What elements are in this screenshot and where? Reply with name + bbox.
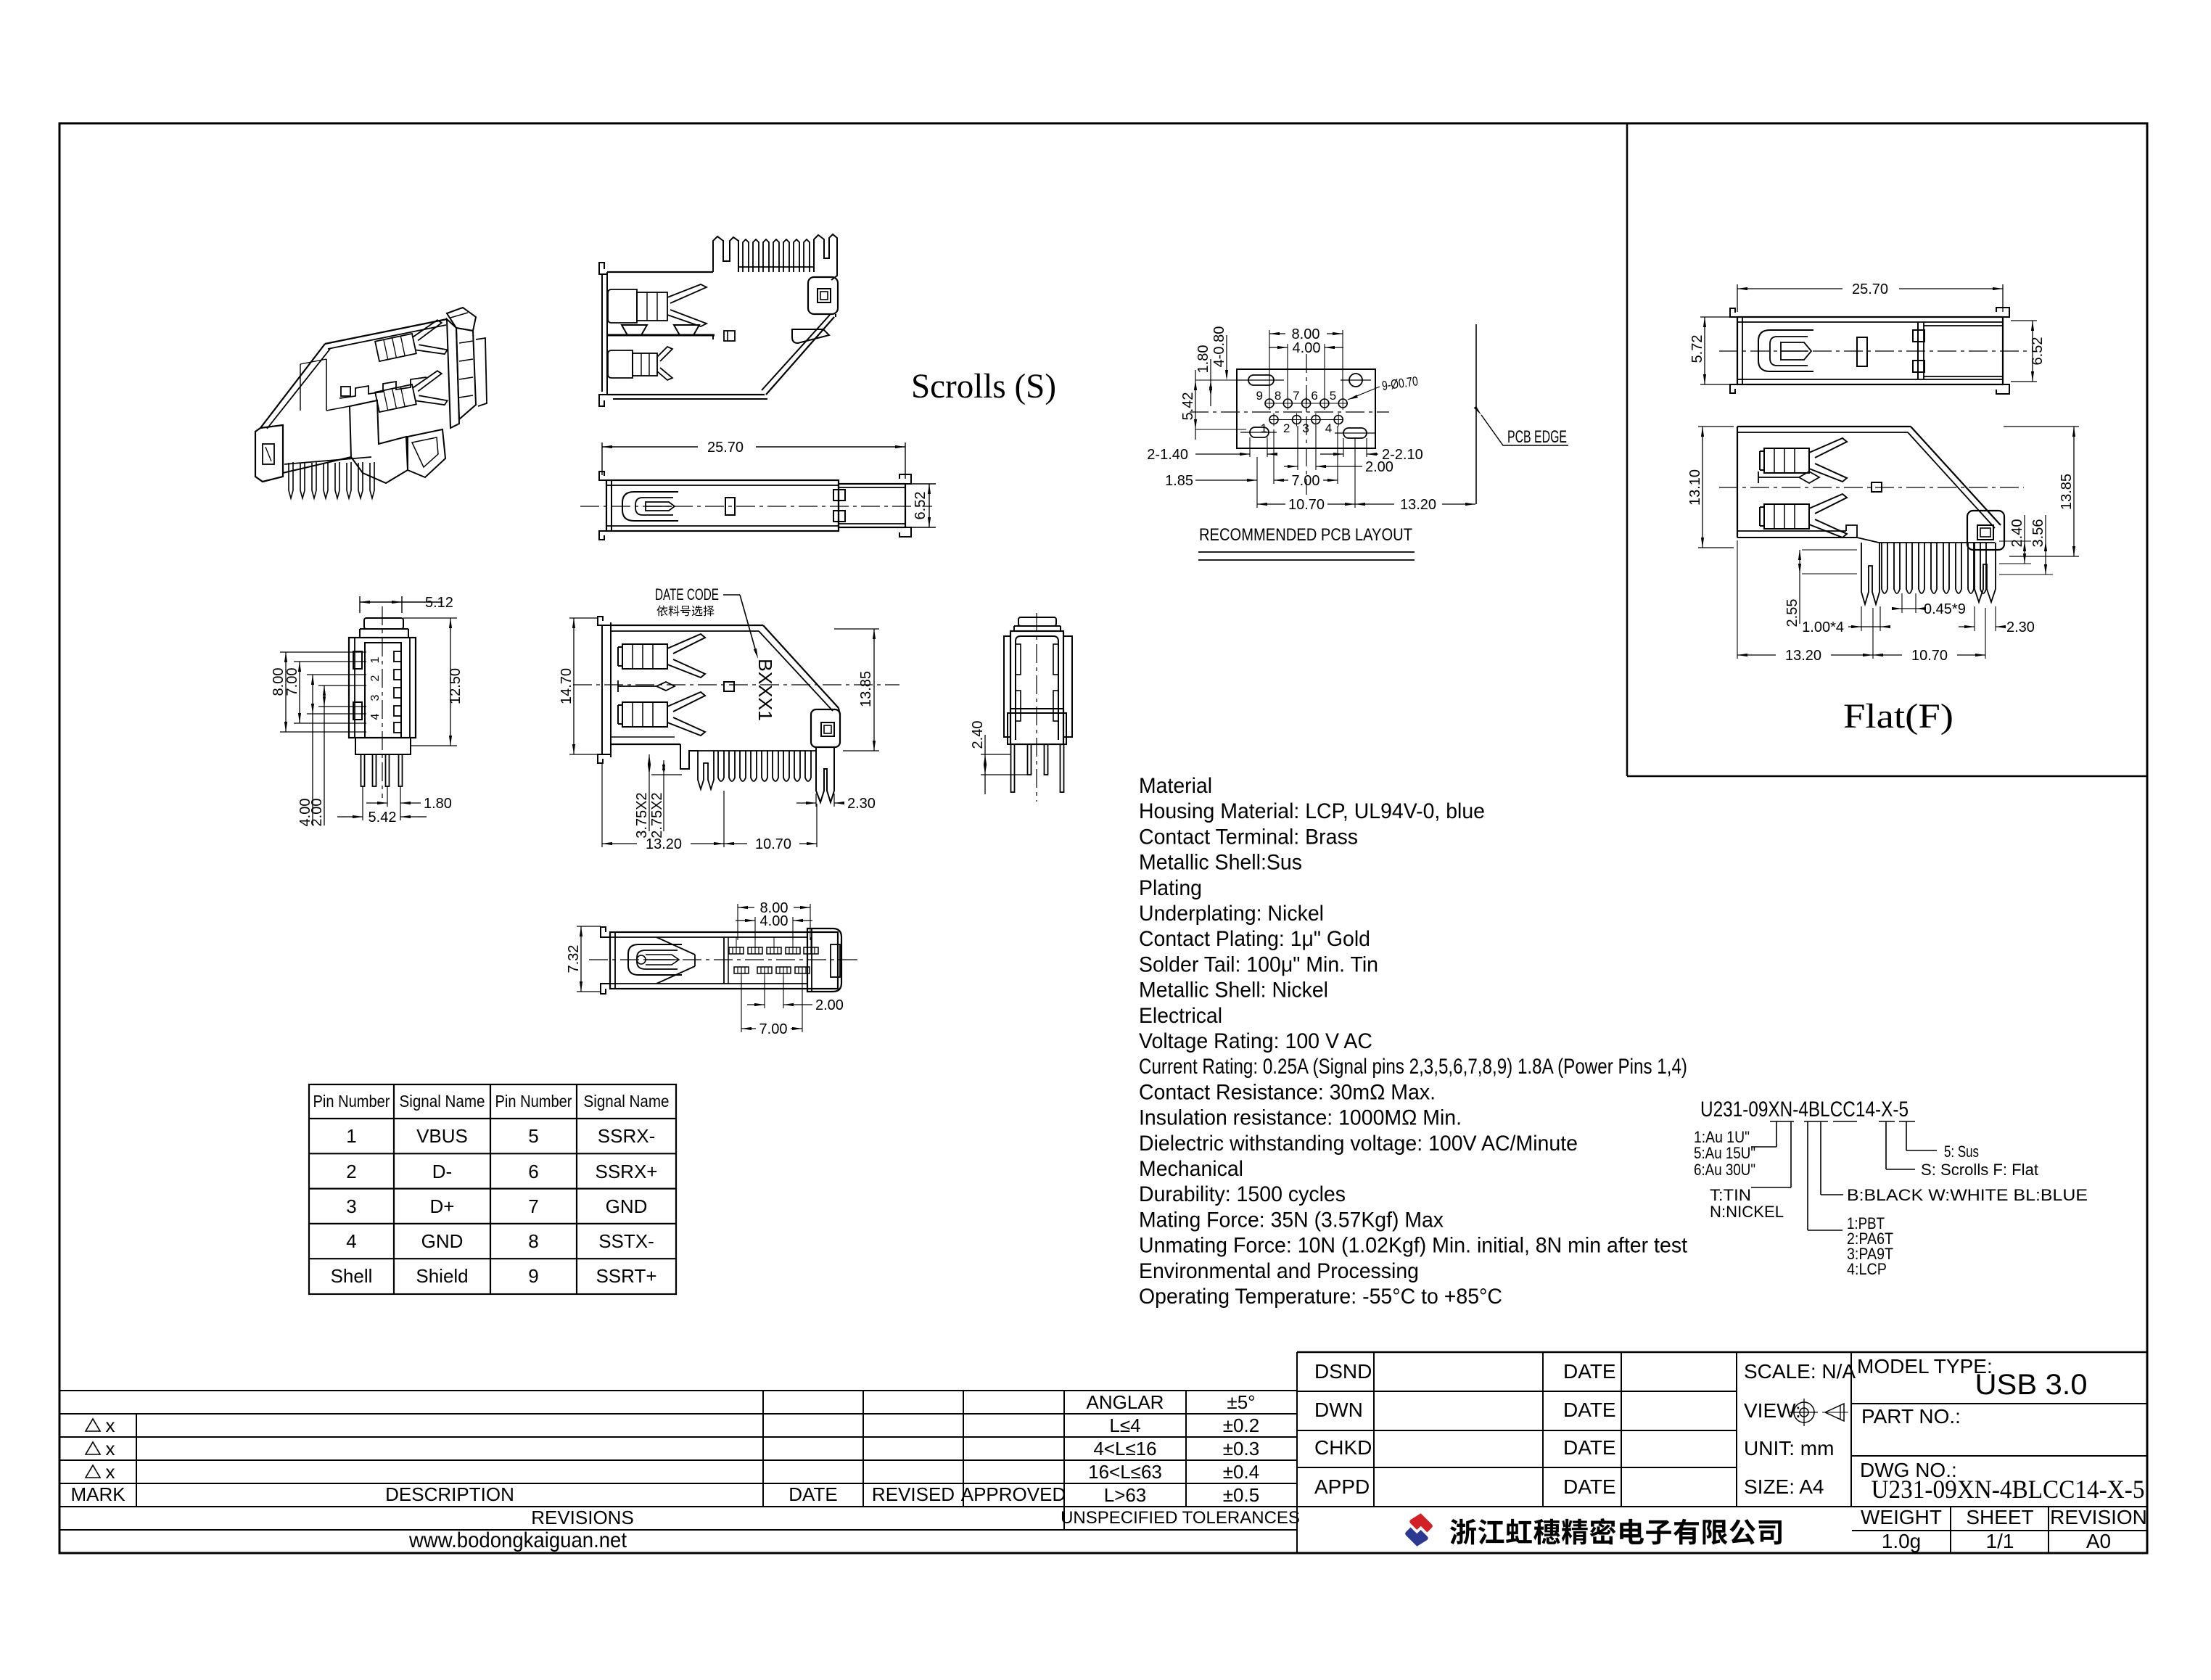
svg-text:±5°: ±5° bbox=[1227, 1391, 1255, 1413]
svg-text:RECOMMENDED PCB LAYOUT: RECOMMENDED PCB LAYOUT bbox=[1199, 525, 1412, 545]
svg-text:Electrical: Electrical bbox=[1139, 1004, 1222, 1028]
svg-text:U231-09XN-4BLCC14-X-5: U231-09XN-4BLCC14-X-5 bbox=[1872, 1475, 2145, 1504]
svg-text:5: 5 bbox=[528, 1125, 538, 1147]
svg-text:MODEL TYPE:: MODEL TYPE: bbox=[1857, 1355, 1993, 1378]
svg-text:4.00: 4.00 bbox=[1293, 340, 1321, 356]
svg-text:6: 6 bbox=[1311, 389, 1317, 403]
svg-text:12.50: 12.50 bbox=[448, 668, 464, 704]
svg-text:5.72: 5.72 bbox=[1689, 335, 1705, 363]
svg-text:14.70: 14.70 bbox=[559, 668, 575, 704]
svg-text:L≤4: L≤4 bbox=[1109, 1415, 1140, 1436]
svg-text:DATE: DATE bbox=[1563, 1436, 1616, 1459]
svg-text:10.70: 10.70 bbox=[1288, 497, 1325, 513]
svg-text:Voltage Rating: 100 V AC: Voltage Rating: 100 V AC bbox=[1139, 1029, 1372, 1053]
svg-text:5.42: 5.42 bbox=[1180, 392, 1196, 421]
svg-text:5: 5 bbox=[1330, 389, 1336, 403]
svg-text:USB 3.0: USB 3.0 bbox=[1975, 1369, 2088, 1401]
svg-text:SSRT+: SSRT+ bbox=[596, 1265, 656, 1287]
svg-text:SSRX+: SSRX+ bbox=[596, 1161, 658, 1182]
svg-text:4: 4 bbox=[346, 1230, 356, 1252]
svg-text:UNSPECIFIED TOLERANCES: UNSPECIFIED TOLERANCES bbox=[1061, 1508, 1300, 1528]
svg-text:A0: A0 bbox=[2086, 1530, 2111, 1552]
svg-text:VBUS: VBUS bbox=[416, 1125, 468, 1147]
svg-text:Dielectric withstanding voltag: Dielectric withstanding voltage: 100V AC… bbox=[1139, 1132, 1578, 1156]
svg-text:x: x bbox=[106, 1461, 115, 1483]
svg-text:3: 3 bbox=[1302, 421, 1309, 435]
svg-text:3: 3 bbox=[346, 1195, 356, 1217]
svg-text:Contact Terminal: Brass: Contact Terminal: Brass bbox=[1139, 825, 1358, 849]
svg-text:2.55: 2.55 bbox=[1784, 599, 1800, 627]
svg-text:MARK: MARK bbox=[70, 1483, 125, 1505]
svg-text:2.75X2: 2.75X2 bbox=[649, 792, 665, 838]
svg-text:8: 8 bbox=[528, 1230, 538, 1252]
svg-text:Shield: Shield bbox=[416, 1265, 468, 1287]
svg-text:SHEET: SHEET bbox=[1966, 1506, 2033, 1528]
svg-text:L>63: L>63 bbox=[1104, 1484, 1147, 1506]
svg-text:1.80: 1.80 bbox=[1195, 345, 1211, 374]
svg-text:7.00: 7.00 bbox=[759, 1021, 788, 1037]
svg-text:DATE: DATE bbox=[789, 1483, 837, 1505]
svg-text:1.80: 1.80 bbox=[424, 796, 452, 812]
svg-text:2.00: 2.00 bbox=[309, 799, 325, 827]
svg-text:13.85: 13.85 bbox=[858, 671, 874, 707]
svg-text:2.40: 2.40 bbox=[970, 721, 986, 749]
svg-text:±0.5: ±0.5 bbox=[1223, 1484, 1259, 1506]
svg-text:N:NICKEL: N:NICKEL bbox=[1710, 1203, 1784, 1221]
svg-text:Scrolls (S): Scrolls (S) bbox=[911, 367, 1056, 405]
svg-text:BXXX1: BXXX1 bbox=[754, 659, 776, 721]
svg-text:7: 7 bbox=[528, 1195, 538, 1217]
svg-text:Metallic Shell:Sus: Metallic Shell:Sus bbox=[1139, 851, 1302, 875]
svg-text:x: x bbox=[106, 1415, 115, 1436]
svg-text:PART NO.:: PART NO.: bbox=[1861, 1405, 1961, 1428]
svg-text:WEIGHT: WEIGHT bbox=[1861, 1506, 1942, 1528]
svg-text:13.20: 13.20 bbox=[646, 836, 682, 852]
svg-text:Unmating Force: 10N (1.02Kgf): Unmating Force: 10N (1.02Kgf) Min. initi… bbox=[1139, 1234, 1688, 1258]
svg-text:3.75X2: 3.75X2 bbox=[634, 792, 650, 838]
svg-text:U231-09XN-4BLCC14-X-5: U231-09XN-4BLCC14-X-5 bbox=[1700, 1098, 1909, 1121]
svg-text:2.00: 2.00 bbox=[815, 997, 844, 1013]
svg-text:±0.2: ±0.2 bbox=[1223, 1415, 1259, 1436]
svg-text:REVISION: REVISION bbox=[2050, 1506, 2147, 1528]
svg-text:Material: Material bbox=[1139, 774, 1212, 798]
svg-text:S: Scrolls F: Flat: S: Scrolls F: Flat bbox=[1921, 1161, 2038, 1179]
svg-text:APPROVED: APPROVED bbox=[961, 1483, 1066, 1505]
svg-text:UNIT: mm: UNIT: mm bbox=[1744, 1437, 1834, 1459]
svg-text:3.56: 3.56 bbox=[2030, 519, 2046, 548]
svg-text:Current Rating: 0.25A (Signal: Current Rating: 0.25A (Signal pins 2,3,5… bbox=[1139, 1055, 1687, 1079]
svg-text:x: x bbox=[106, 1438, 115, 1459]
svg-text:VIEW:: VIEW: bbox=[1744, 1399, 1801, 1422]
svg-text:2-1.40: 2-1.40 bbox=[1147, 447, 1188, 463]
svg-text:13.10: 13.10 bbox=[1687, 469, 1703, 506]
svg-text:1.0g: 1.0g bbox=[1882, 1530, 1922, 1552]
svg-text:Contact Plating: 1μ" Gold: Contact Plating: 1μ" Gold bbox=[1139, 927, 1370, 951]
svg-text:7: 7 bbox=[1293, 389, 1299, 403]
svg-text:1/1: 1/1 bbox=[1986, 1530, 2014, 1552]
svg-text:16<L≤63: 16<L≤63 bbox=[1088, 1461, 1162, 1483]
svg-text:DESCRIPTION: DESCRIPTION bbox=[385, 1483, 514, 1505]
svg-text:Underplating: Nickel: Underplating: Nickel bbox=[1139, 902, 1324, 926]
svg-text:DATE: DATE bbox=[1563, 1475, 1616, 1498]
svg-text:7.32: 7.32 bbox=[566, 945, 582, 973]
svg-text:T:TIN: T:TIN bbox=[1710, 1186, 1751, 1204]
svg-text:5.42: 5.42 bbox=[368, 810, 397, 825]
svg-text:5.12: 5.12 bbox=[425, 595, 453, 611]
svg-text:CHKD: CHKD bbox=[1314, 1436, 1372, 1459]
svg-text:Housing Material: LCP, UL94V-0: Housing Material: LCP, UL94V-0, blue bbox=[1139, 799, 1485, 823]
svg-text:Mating Force: 35N (3.57Kgf) Ma: Mating Force: 35N (3.57Kgf) Max bbox=[1139, 1208, 1444, 1232]
svg-text:Shell: Shell bbox=[331, 1265, 373, 1287]
svg-text:25.70: 25.70 bbox=[707, 440, 744, 456]
svg-text:Signal Name: Signal Name bbox=[400, 1092, 485, 1111]
svg-text:Flat(F): Flat(F) bbox=[1843, 697, 1953, 736]
svg-text:13.85: 13.85 bbox=[2059, 474, 2075, 510]
svg-text:10.70: 10.70 bbox=[755, 836, 791, 852]
svg-text:DATE: DATE bbox=[1563, 1399, 1616, 1421]
svg-text:9: 9 bbox=[1256, 389, 1263, 403]
svg-text:1: 1 bbox=[346, 1125, 356, 1147]
svg-text:SIZE: A4: SIZE: A4 bbox=[1744, 1475, 1824, 1498]
svg-text:Operating Temperature: -55°C t: Operating Temperature: -55°C to +85°C bbox=[1139, 1285, 1502, 1309]
svg-text:6.52: 6.52 bbox=[2030, 337, 2046, 366]
svg-text:Signal Name: Signal Name bbox=[584, 1092, 670, 1111]
svg-text:8: 8 bbox=[1275, 389, 1281, 403]
svg-text:REVISED: REVISED bbox=[872, 1483, 955, 1505]
svg-text:Plating: Plating bbox=[1139, 876, 1202, 900]
svg-text:Pin Number: Pin Number bbox=[313, 1092, 390, 1111]
svg-text:Metallic Shell: Nickel: Metallic Shell: Nickel bbox=[1139, 979, 1328, 1002]
svg-text:1: 1 bbox=[1261, 421, 1267, 435]
svg-text:Mechanical: Mechanical bbox=[1139, 1157, 1243, 1181]
svg-text:±0.4: ±0.4 bbox=[1223, 1461, 1259, 1483]
svg-text:6:Au 30U": 6:Au 30U" bbox=[1694, 1161, 1755, 1179]
svg-text:1: 1 bbox=[369, 656, 382, 663]
svg-text:4-0.80: 4-0.80 bbox=[1211, 326, 1227, 368]
svg-text:DATE: DATE bbox=[1563, 1360, 1616, 1383]
svg-text:6: 6 bbox=[528, 1161, 538, 1182]
svg-text:Durability: 1500 cycles: Durability: 1500 cycles bbox=[1139, 1182, 1346, 1206]
svg-text:DWN: DWN bbox=[1314, 1399, 1363, 1421]
svg-text:2.00: 2.00 bbox=[1365, 459, 1393, 475]
svg-text:Insulation resistance: 1000MΩ: Insulation resistance: 1000MΩ Min. bbox=[1139, 1106, 1462, 1130]
svg-text:ANGLAR: ANGLAR bbox=[1087, 1391, 1164, 1413]
svg-text:DATE CODE: DATE CODE bbox=[655, 585, 719, 604]
svg-text:1.00*4: 1.00*4 bbox=[1802, 619, 1844, 635]
svg-text:4<L≤16: 4<L≤16 bbox=[1093, 1438, 1156, 1459]
svg-text:7.00: 7.00 bbox=[284, 668, 300, 696]
svg-text:Solder Tail: 100μ" Min. Tin: Solder Tail: 100μ" Min. Tin bbox=[1139, 952, 1378, 976]
svg-text:5:Au 15U": 5:Au 15U" bbox=[1694, 1144, 1755, 1162]
svg-text:B:BLACK W:WHITE BL:BLUE: B:BLACK W:WHITE BL:BLUE bbox=[1847, 1186, 2088, 1204]
svg-text:2: 2 bbox=[1283, 421, 1290, 435]
svg-text:2.40: 2.40 bbox=[2009, 519, 2025, 548]
svg-text:25.70: 25.70 bbox=[1852, 281, 1888, 297]
svg-text:GND: GND bbox=[606, 1195, 648, 1217]
svg-text:6.52: 6.52 bbox=[913, 492, 929, 520]
svg-text:4: 4 bbox=[369, 713, 382, 720]
svg-text:REVISIONS: REVISIONS bbox=[531, 1507, 634, 1528]
svg-text:SCALE: N/A: SCALE: N/A bbox=[1744, 1360, 1856, 1383]
svg-text:2: 2 bbox=[346, 1161, 356, 1182]
svg-text:PCB EDGE: PCB EDGE bbox=[1507, 427, 1567, 447]
svg-text:9: 9 bbox=[528, 1265, 538, 1287]
svg-text:SSTX-: SSTX- bbox=[598, 1230, 654, 1252]
svg-text:5: Sus: 5: Sus bbox=[1944, 1142, 1979, 1161]
svg-text:2.30: 2.30 bbox=[2006, 619, 2035, 635]
svg-text:D-: D- bbox=[432, 1161, 452, 1182]
svg-text:4: 4 bbox=[1325, 421, 1332, 435]
svg-text:SSRX-: SSRX- bbox=[598, 1125, 655, 1147]
svg-text:2: 2 bbox=[369, 675, 382, 681]
svg-text:0.45*9: 0.45*9 bbox=[1924, 601, 1966, 617]
svg-text:Pin Number: Pin Number bbox=[495, 1092, 572, 1111]
svg-text:±0.3: ±0.3 bbox=[1223, 1438, 1259, 1459]
svg-text:GND: GND bbox=[421, 1230, 464, 1252]
svg-text:Contact Resistance: 30mΩ Max.: Contact Resistance: 30mΩ Max. bbox=[1139, 1080, 1436, 1104]
svg-text:7.00: 7.00 bbox=[1292, 473, 1320, 489]
svg-text:10.70: 10.70 bbox=[1911, 648, 1948, 664]
svg-text:13.20: 13.20 bbox=[1785, 648, 1821, 664]
svg-text:D+: D+ bbox=[430, 1195, 455, 1217]
svg-text:3: 3 bbox=[369, 694, 382, 701]
svg-text:13.20: 13.20 bbox=[1400, 497, 1436, 513]
svg-text:www.bodongkaiguan.net: www.bodongkaiguan.net bbox=[408, 1528, 627, 1552]
svg-text:APPD: APPD bbox=[1314, 1475, 1370, 1498]
svg-text:DSND: DSND bbox=[1314, 1360, 1372, 1383]
svg-text:4:LCP: 4:LCP bbox=[1847, 1260, 1887, 1278]
svg-text:4.00: 4.00 bbox=[760, 913, 789, 929]
svg-text:1.85: 1.85 bbox=[1165, 473, 1193, 489]
svg-text:2.30: 2.30 bbox=[847, 796, 876, 812]
svg-text:Environmental and Processing: Environmental and Processing bbox=[1139, 1259, 1419, 1283]
